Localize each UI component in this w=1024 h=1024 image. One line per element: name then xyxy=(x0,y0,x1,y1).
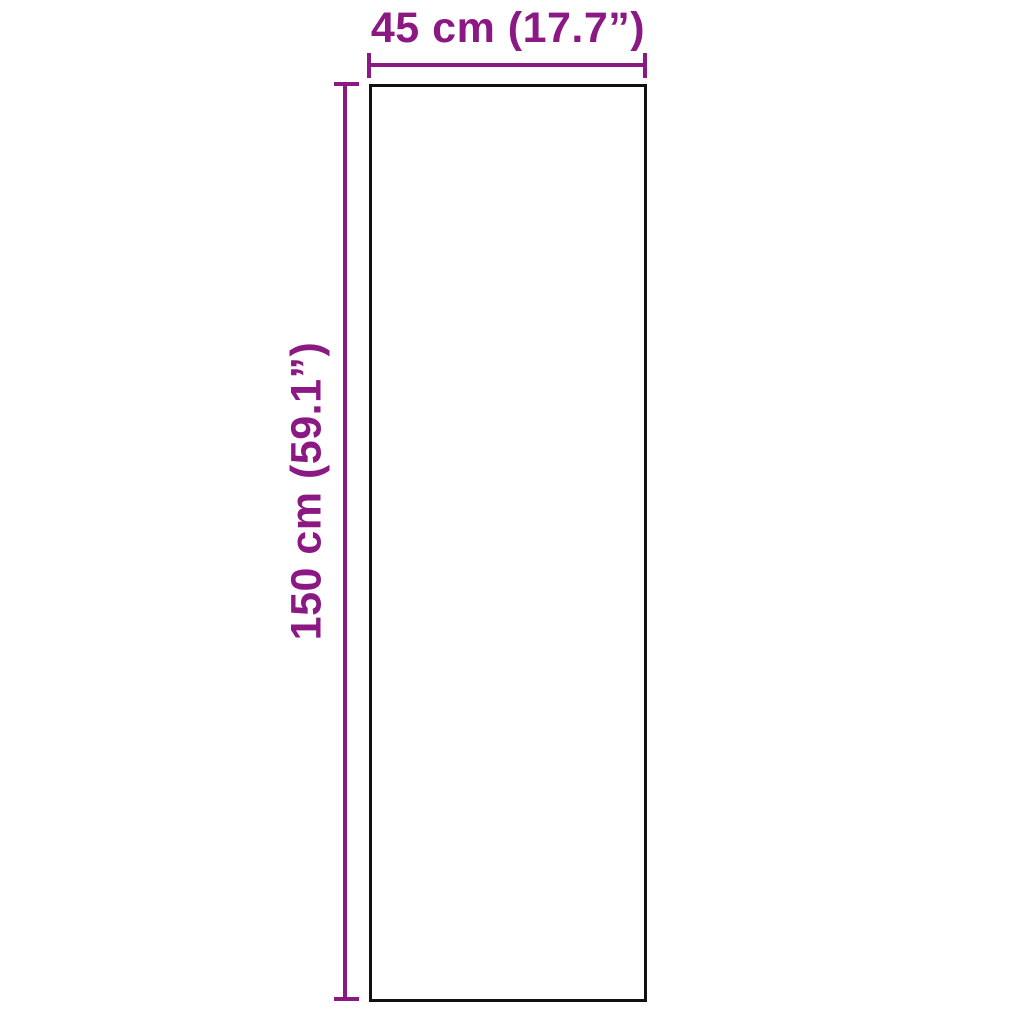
height-dimension-line xyxy=(343,84,347,1001)
width-dimension-label: 45 cm (17.7”) xyxy=(349,4,667,53)
width-dimension-line xyxy=(369,63,646,67)
width-dimension-right-tick xyxy=(643,53,647,78)
product-outline-rect xyxy=(369,84,647,1002)
height-dimension-bottom-tick xyxy=(334,997,359,1001)
height-dimension-top-tick xyxy=(334,82,359,86)
dimension-diagram: 45 cm (17.7”) 150 cm (59.1”) xyxy=(0,0,1024,1024)
width-dimension-left-tick xyxy=(367,53,371,78)
height-dimension-label: 150 cm (59.1”) xyxy=(283,342,332,641)
